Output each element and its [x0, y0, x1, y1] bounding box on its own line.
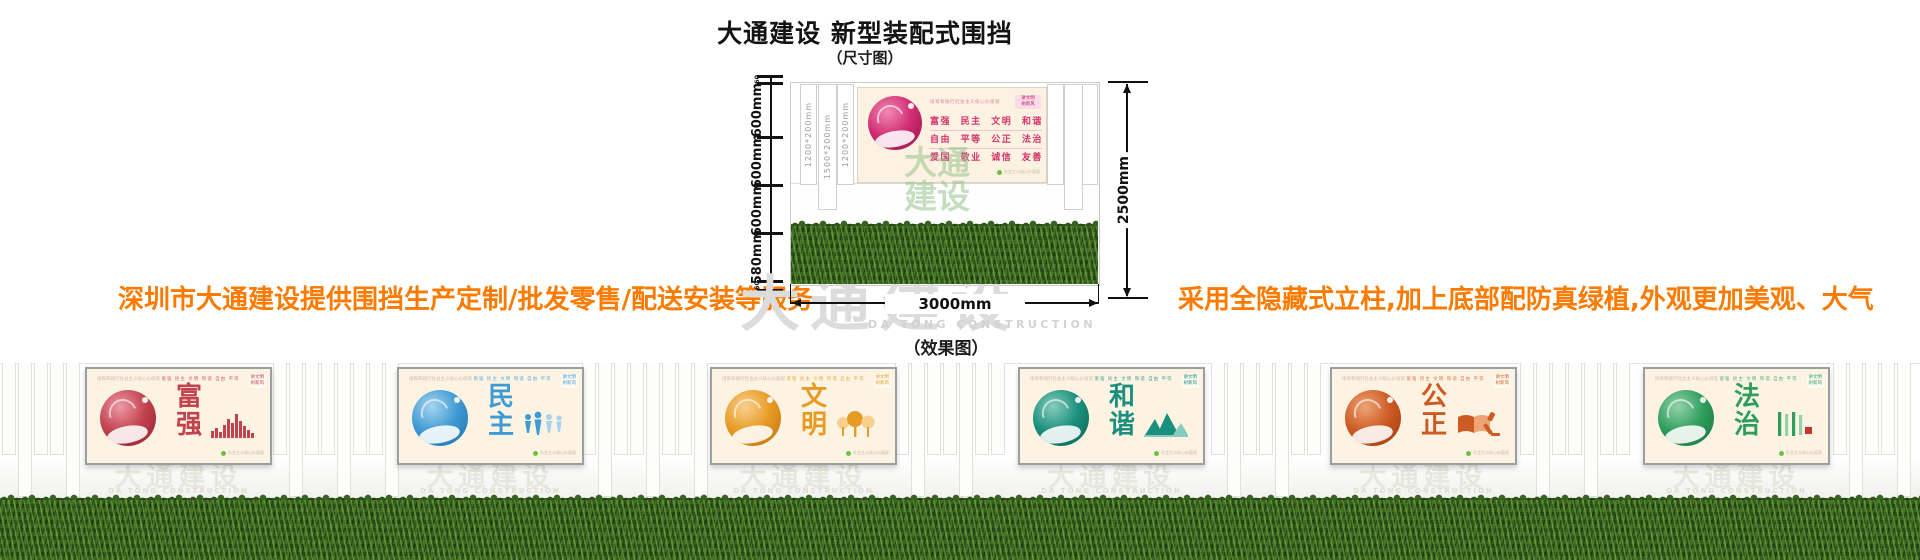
fence-slat [1600, 363, 1614, 455]
fence-slat [646, 363, 660, 497]
fence-slat [614, 363, 628, 455]
fence-slat [582, 363, 596, 455]
fence-slat [943, 363, 957, 455]
panel-theme-word: 文明 [798, 383, 830, 439]
effect-panel-6: 培育和践行社会主义核心价值观 富强 民主 文明 和谐 自由 平等 公正 法治 爱… [1643, 367, 1830, 465]
fence-slat [1568, 363, 1582, 455]
paper-cut-circle [100, 390, 156, 446]
fence-slat [321, 363, 335, 455]
hidden-post: 1200*200mm [837, 84, 854, 185]
ruler-segment-label: 600mm [744, 185, 770, 233]
dim-tick-bottom [1108, 297, 1148, 299]
fence-slat [369, 363, 383, 455]
green-dot-icon [221, 451, 226, 456]
arrow-up-icon [1123, 84, 1131, 93]
green-dot-icon [846, 451, 851, 456]
panel-theme-word: 法治 [1731, 383, 1763, 439]
panel-slogan-text: 培育和践行社会主义核心价值观 [409, 377, 473, 382]
panel-theme-word: 富强 [173, 383, 205, 439]
fence-slat [991, 363, 1005, 455]
paper-cut-circle [1345, 390, 1401, 446]
poster-footer-note: 社会主义核心价值观 [997, 169, 1040, 175]
effect-panel-2: 培育和践行社会主义核心价值观 富强 民主 文明 和谐 自由 平等 公正 法治 爱… [397, 367, 584, 465]
fence-slat [911, 363, 925, 497]
green-dot-icon [533, 451, 538, 456]
arrow-left-icon [792, 299, 801, 307]
fence-slat [598, 363, 612, 497]
effect-panel-5: 培育和践行社会主义核心价值观 富强 民主 文明 和谐 自由 平等 公正 法治 爱… [1330, 367, 1517, 465]
green-watermark: 大通建设 [901, 146, 973, 214]
footer-note-text: 社会主义核心价值观 [1004, 169, 1040, 175]
fence-slat [1833, 363, 1847, 455]
trees-icon [835, 409, 881, 439]
panel-header-strip: 培育和践行社会主义核心价值观 富强 民主 文明 和谐 自由 平等 公正 法治 爱… [722, 376, 867, 382]
fence-slat [1307, 363, 1321, 455]
ruler-segment-text: 600mm [750, 134, 765, 188]
city-bars-icon [210, 409, 256, 439]
fence-slat [1536, 363, 1550, 497]
panel-footer-note: 社会主义核心价值观 [1779, 450, 1822, 456]
fence-slat [927, 363, 941, 455]
dim-ext-right [1098, 284, 1099, 304]
right-feature-note: 采用全隐藏式立柱,加上底部配防真绿植,外观更加美观、大气 [1178, 279, 1874, 316]
panel-slogan-text: 培育和践行社会主义核心价值观 [722, 377, 786, 382]
grass-hedge-small [791, 224, 1098, 284]
panel-corner-badge: 讲文明树新风 [249, 374, 267, 388]
ruler-segment-label: 600mm [744, 137, 770, 185]
panel-slogan-text: 培育和践行社会主义核心价值观 [1655, 377, 1719, 382]
paper-cut-circle [868, 96, 922, 150]
panel-footer-note: 社会主义核心价值观 [221, 450, 264, 456]
footer-note-text: 社会主义核心价值观 [1473, 450, 1509, 456]
arrow-down-icon [1123, 288, 1131, 297]
panel-header-strip: 培育和践行社会主义核心价值观 富强 民主 文明 和谐 自由 平等 公正 法治 爱… [1030, 376, 1175, 382]
footer-note-text: 社会主义核心价值观 [1786, 450, 1822, 456]
footer-note-text: 社会主义核心价值观 [853, 450, 889, 456]
book-gavel-icon [1455, 409, 1501, 439]
paper-cut-circle [725, 390, 781, 446]
fence-slat [1552, 363, 1566, 455]
fence-slat [895, 363, 909, 455]
dim-ext-left [790, 284, 791, 304]
people-icon [522, 409, 568, 439]
green-dot-icon [1466, 451, 1471, 456]
ruler-segment-label: 600mm [744, 83, 770, 137]
fence-slat [1227, 363, 1241, 497]
effect-panel-4: 培育和践行社会主义核心价值观 富强 民主 文明 和谐 自由 平等 公正 法治 爱… [1018, 367, 1205, 465]
panel-theme-word: 公正 [1418, 383, 1450, 439]
footer-note-text: 社会主义核心价值观 [1161, 450, 1197, 456]
panel-corner-badge: 讲文明树新风 [1494, 374, 1512, 388]
panel-footer-note: 社会主义核心价值观 [846, 450, 889, 456]
fence-slat [353, 363, 367, 455]
core-values-row: 富强 民主 文明 和谐 [930, 114, 1042, 131]
fence-slat [975, 363, 989, 455]
panel-theme-word: 民主 [485, 383, 517, 439]
fence-slat [66, 363, 80, 497]
promo-sheet: 大通建设 新型装配式围挡 （尺寸图） 培育和践行社会主义核心价值观 讲文明 树新… [0, 0, 1920, 560]
mountains-icon [1143, 409, 1189, 439]
fence-slat [273, 363, 287, 455]
fence-slat [2, 363, 16, 455]
fence-slat [18, 363, 32, 497]
fence-slat [959, 363, 973, 497]
fence-slat [1584, 363, 1598, 497]
fence-slat [1259, 363, 1273, 455]
fence-slat [34, 363, 48, 455]
panel-header-strip: 培育和践行社会主义核心价值观 富强 民主 文明 和谐 自由 平等 公正 法治 爱… [1342, 376, 1487, 382]
fence-slat [678, 363, 692, 455]
fence-slat [1211, 363, 1225, 455]
hidden-post: 1200*200mm [800, 84, 817, 185]
panel-footer-note: 社会主义核心价值观 [533, 450, 576, 456]
fence-slat [1243, 363, 1257, 455]
post-size-label: 1500*200mm [823, 114, 832, 179]
fence-slat [694, 363, 708, 497]
poster-corner-badge: 讲文明 树新风 [1015, 95, 1041, 109]
green-dot-icon [1779, 451, 1784, 456]
arrow-right-icon [1089, 299, 1098, 307]
panel-corner-badge: 讲文明树新风 [874, 374, 892, 388]
panel-header-strip: 培育和践行社会主义核心价值观 富强 民主 文明 和谐 自由 平等 公正 法治 爱… [1655, 376, 1800, 382]
paper-cut-circle [1033, 390, 1089, 446]
fence-slat [1616, 363, 1630, 455]
paper-cut-circle [412, 390, 468, 446]
panel-footer-note: 社会主义核心价值观 [1466, 450, 1509, 456]
panel-corner-badge: 讲文明树新风 [1182, 374, 1200, 388]
fence-slat [1275, 363, 1289, 497]
hidden-post [1064, 84, 1083, 210]
dimension-diagram-caption: （尺寸图） [0, 47, 1730, 68]
hidden-post [1047, 84, 1064, 185]
watermark-latin: DA TONG CONSTRUCTION [868, 318, 1096, 331]
ruler-segment-text: 600mm [750, 182, 765, 236]
fence-slat [1897, 363, 1911, 497]
badge-line-2: 树新风 [1017, 102, 1039, 108]
post-size-label: 1200*200mm [841, 102, 850, 167]
fence-slat [1520, 363, 1534, 455]
footer-note-text: 社会主义核心价值观 [228, 450, 264, 456]
hidden-post [1082, 84, 1098, 185]
panel-header-strip: 培育和践行社会主义核心价值观 富强 民主 文明 和谐 自由 平等 公正 法治 爱… [97, 376, 242, 382]
ruler-segment-text: 600mm [750, 83, 765, 137]
fence-slat [630, 363, 644, 455]
fence-slat [1291, 363, 1305, 455]
grass-hedge-large [0, 498, 1920, 560]
green-dot-icon [1154, 451, 1159, 456]
fence-slat [662, 363, 676, 455]
post-size-label: 1200*200mm [804, 102, 813, 167]
fence-slat [1881, 363, 1895, 455]
effect-panel-1: 培育和践行社会主义核心价值观 富强 民主 文明 和谐 自由 平等 公正 法治 爱… [85, 367, 272, 465]
green-dot-icon [997, 170, 1002, 175]
hidden-post: 1500*200mm [818, 84, 837, 210]
panel-theme-word: 和谐 [1106, 383, 1138, 439]
fence-slat [305, 363, 319, 455]
panel-footer-note: 社会主义核心价值观 [1154, 450, 1197, 456]
panel-corner-badge: 讲文明树新风 [1807, 374, 1825, 388]
paper-cut-circle [1658, 390, 1714, 446]
poster-slogan-header: 培育和践行社会主义核心价值观 [930, 99, 1000, 105]
panel-slogan-text: 培育和践行社会主义核心价值观 [1342, 377, 1406, 382]
panel-header-strip: 培育和践行社会主义核心价值观 富强 民主 文明 和谐 自由 平等 公正 法治 爱… [409, 376, 554, 382]
footer-note-text: 社会主义核心价值观 [540, 450, 576, 456]
fence-slat [1865, 363, 1879, 455]
fence-slat [1849, 363, 1863, 497]
dim-tick-top [1108, 81, 1148, 83]
fence-slat [50, 363, 64, 455]
total-width-label: 3000mm [885, 294, 1025, 314]
total-height-label: 2500mm [1115, 152, 1133, 228]
panel-corner-badge: 讲文明树新风 [561, 374, 579, 388]
fence-slat [337, 363, 351, 497]
panel-slogan-text: 培育和践行社会主义核心价值观 [1030, 377, 1094, 382]
calligraphy-icon [1768, 409, 1814, 439]
left-service-note: 深圳市大通建设提供围挡生产定制/批发零售/配送安装等服务 [118, 279, 813, 316]
panel-slogan-text: 培育和践行社会主义核心价值观 [97, 377, 161, 382]
page-title: 大通建设 新型装配式围挡 [0, 14, 1730, 50]
fence-slat [289, 363, 303, 497]
effect-panel-3: 培育和践行社会主义核心价值观 富强 民主 文明 和谐 自由 平等 公正 法治 爱… [710, 367, 897, 465]
